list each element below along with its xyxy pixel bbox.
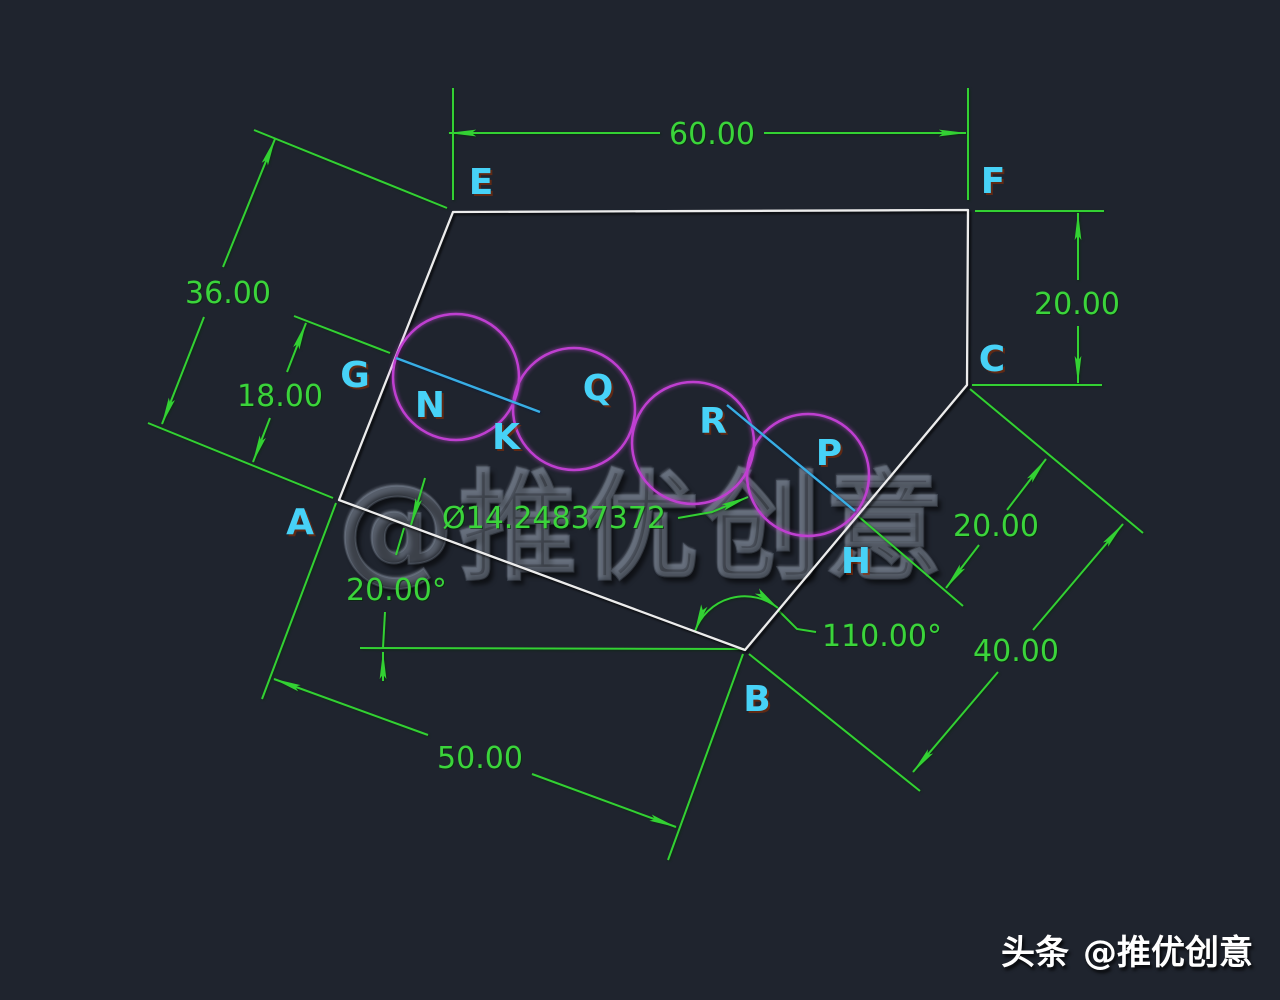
dim-line-40-upper <box>1033 524 1123 630</box>
credit-handle: @推优创意 <box>1083 933 1253 973</box>
ext-line-e-diag <box>254 130 447 208</box>
dim-line-40-lower <box>913 672 998 772</box>
label-P: P <box>816 433 842 474</box>
label-F: F <box>981 161 1006 202</box>
dim-line-36-bottom <box>162 317 204 424</box>
label-H: H <box>841 541 871 582</box>
dim-left-partial: 18.00 <box>237 379 323 414</box>
dim-left-total: 36.00 <box>185 276 271 311</box>
dim-line-50-right <box>532 774 676 827</box>
label-C: C <box>979 339 1005 380</box>
angle-ref-line-b <box>360 648 744 649</box>
angle-arrow-20-b <box>411 478 425 525</box>
ext-line-g <box>294 316 390 353</box>
dim-angle-b: 110.00° <box>822 619 942 654</box>
credit-banner: 头条@推优创意 <box>1001 925 1253 974</box>
cad-drawing: 60.00 36.00 18.00 20.00 20.00 40.00 50.0… <box>0 0 1280 1000</box>
dim-diameter: Ø14.24837372 <box>442 501 666 536</box>
label-R: R <box>699 401 727 442</box>
label-G: G <box>340 355 370 396</box>
ext-line-h <box>858 516 963 606</box>
angle-leader-110 <box>779 611 816 632</box>
dim-line-20ch-lower <box>946 545 979 588</box>
ext-line-b-right <box>749 654 920 791</box>
label-E: E <box>469 162 494 203</box>
angle-arc-20-frag1 <box>383 612 385 648</box>
dim-cb-length: 40.00 <box>973 634 1059 669</box>
dimension-geometry <box>148 88 1143 860</box>
credit-brand: 头条 <box>1001 933 1069 973</box>
dim-angle-a: 20.00° <box>346 573 447 608</box>
angle-arc-20-frag2 <box>396 528 404 555</box>
dim-line-18-top <box>287 323 306 372</box>
dim-line-18-bottom <box>253 418 270 462</box>
label-B: B <box>743 679 770 720</box>
dim-line-36-top <box>223 139 275 267</box>
dim-top-width: 60.00 <box>669 117 755 152</box>
circle-R <box>632 382 754 504</box>
ext-line-a-diag <box>148 423 333 498</box>
cad-canvas: @推优创意 <box>0 0 1280 1000</box>
label-K: K <box>492 417 521 458</box>
dim-ch-offset: 20.00 <box>953 509 1039 544</box>
dim-line-20ch-upper <box>1007 459 1046 510</box>
dim-right-height: 20.00 <box>1034 287 1120 322</box>
dim-line-50-left <box>274 679 428 735</box>
label-Q: Q <box>583 368 614 409</box>
label-N: N <box>415 385 445 426</box>
circle-P <box>747 414 869 536</box>
dimension-texts: 60.00 36.00 18.00 20.00 20.00 40.00 50.0… <box>185 117 1120 776</box>
label-A: A <box>286 502 314 543</box>
dim-bottom-width: 50.00 <box>437 741 523 776</box>
ext-line-b-bottom <box>668 654 743 860</box>
